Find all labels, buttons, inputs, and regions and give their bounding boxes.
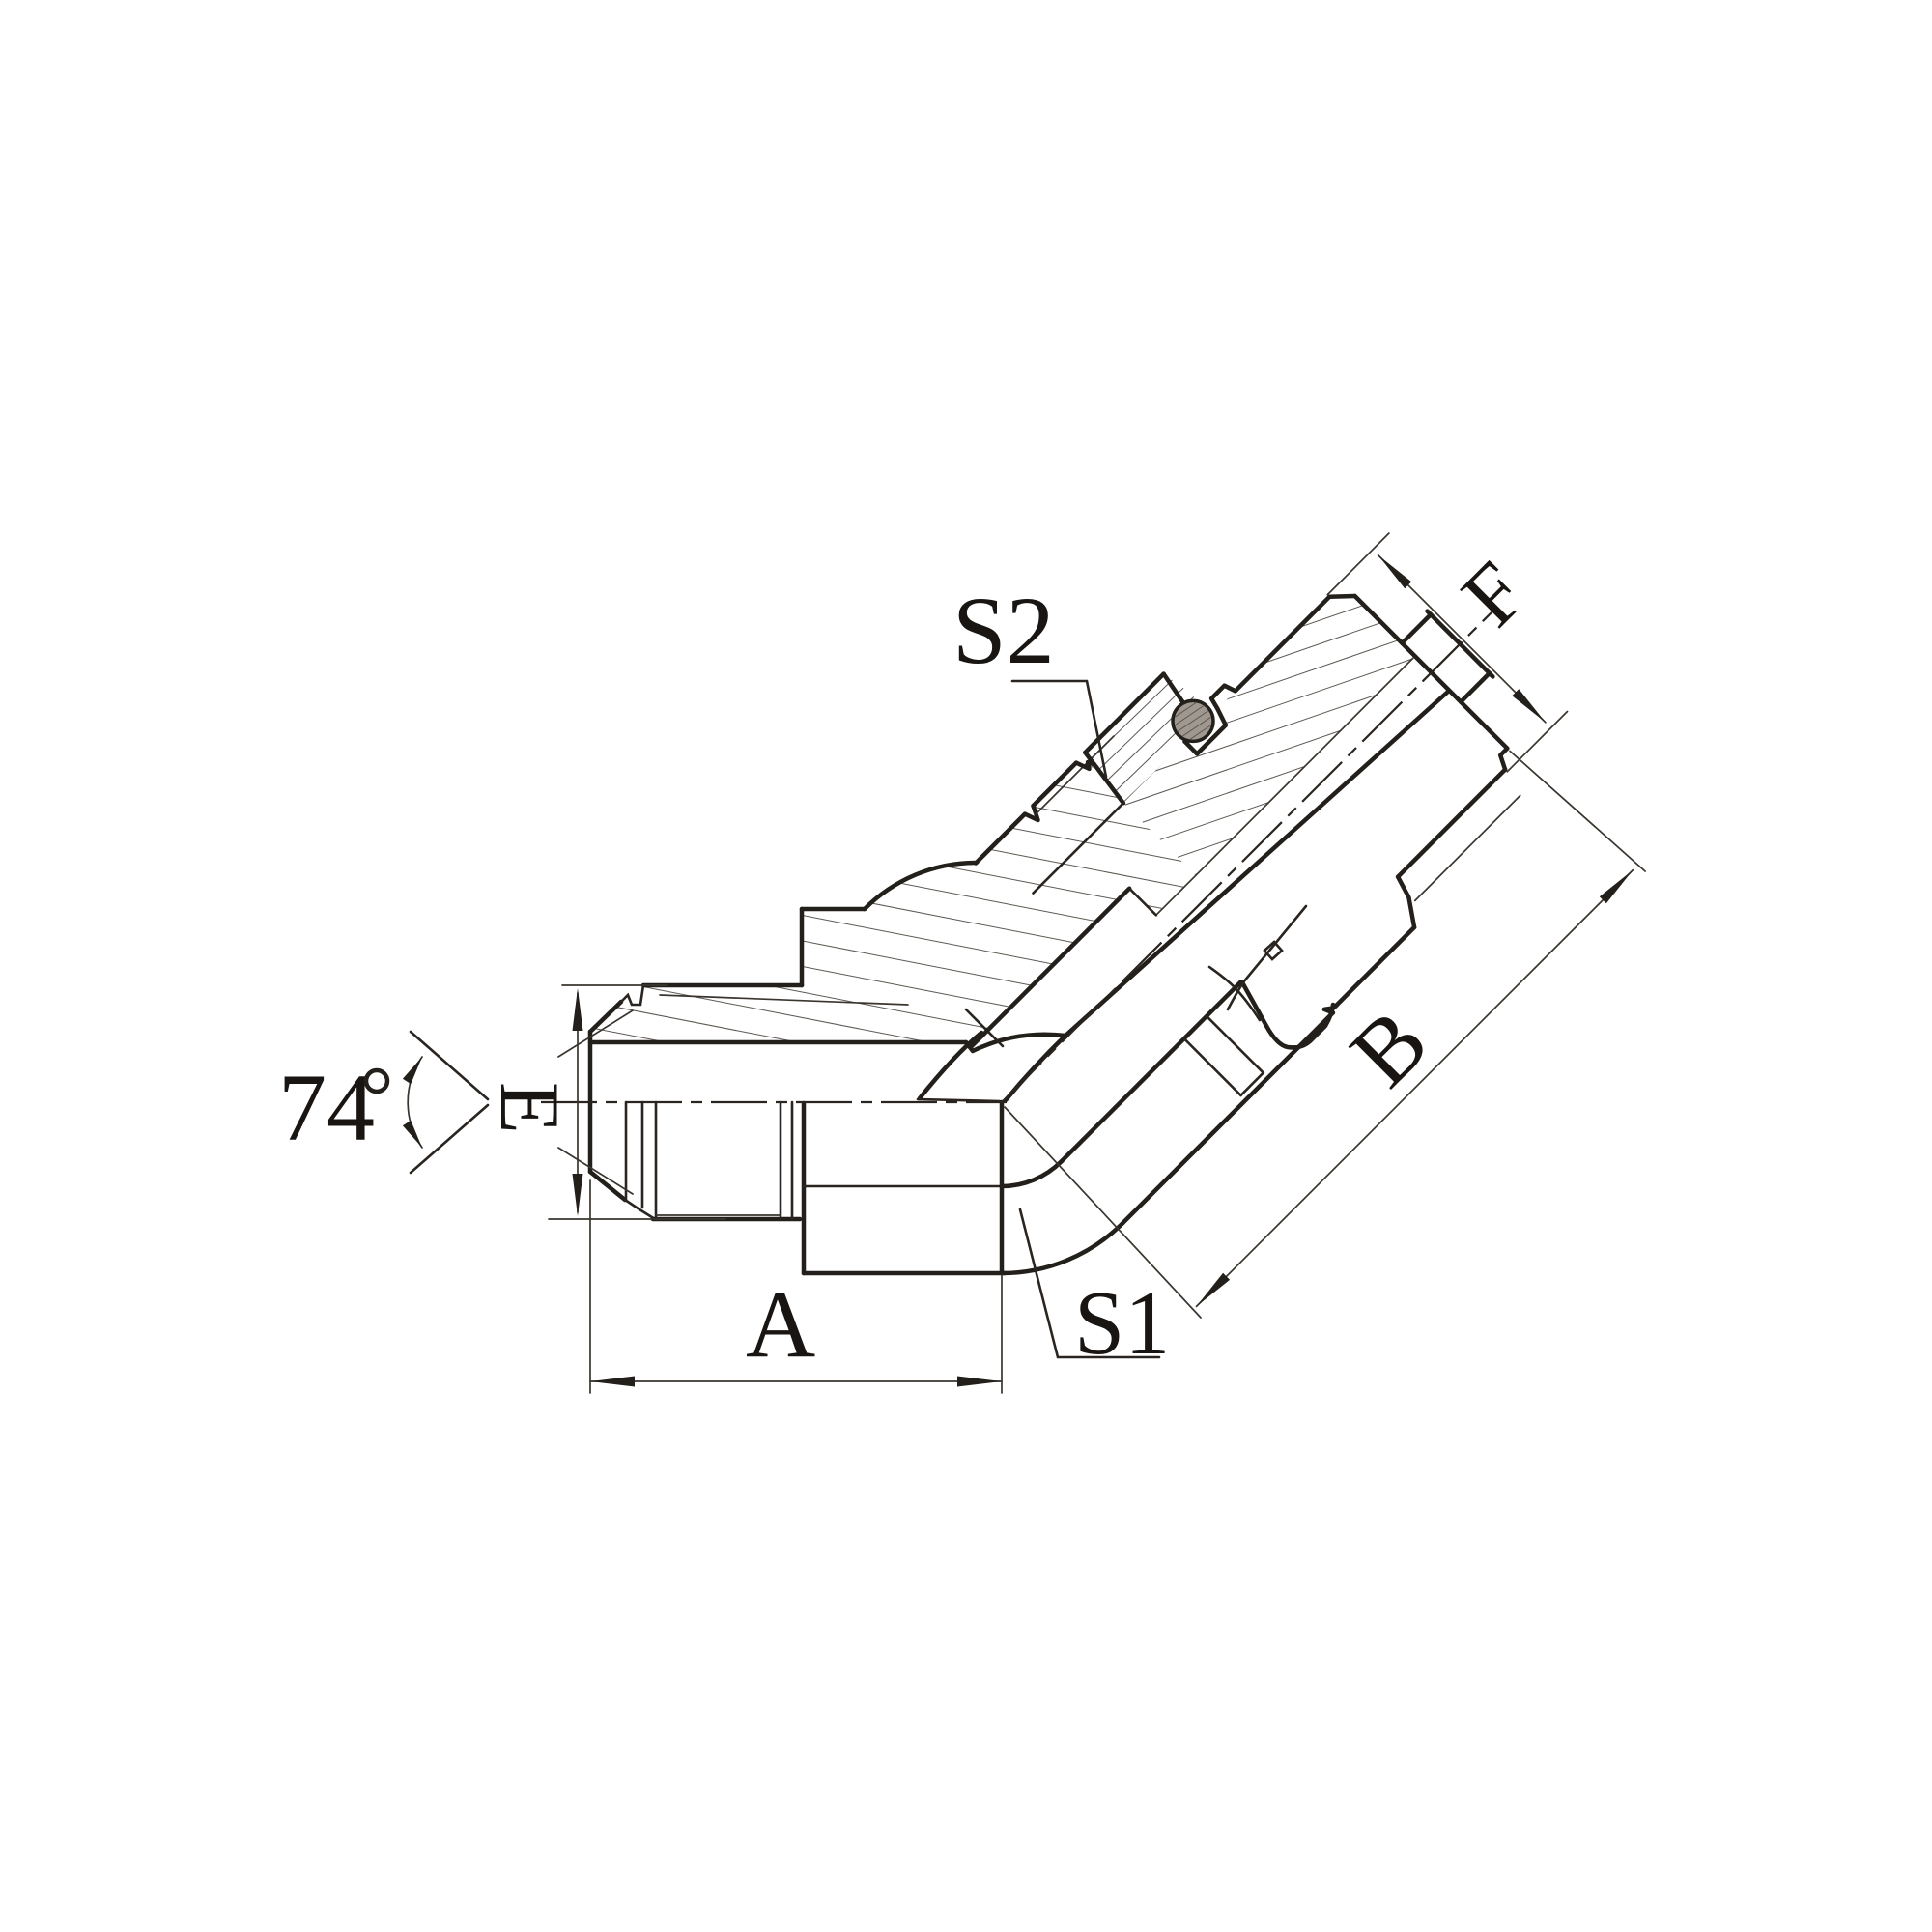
- svg-text:E: E: [482, 1082, 576, 1134]
- svg-text:S1: S1: [1074, 1273, 1170, 1374]
- svg-text:74: 74: [278, 1054, 375, 1161]
- svg-text:A: A: [746, 1270, 815, 1378]
- svg-text:S2: S2: [952, 577, 1055, 684]
